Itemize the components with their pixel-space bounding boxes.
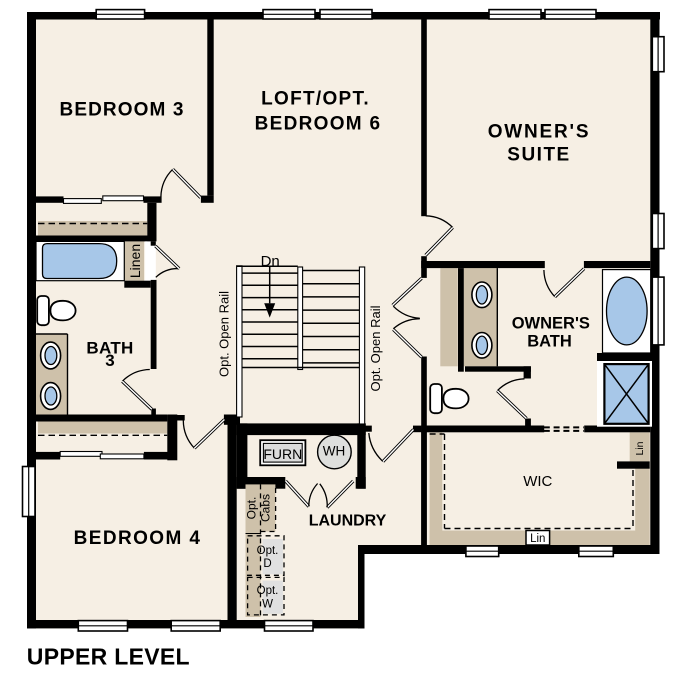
svg-text:SUITE: SUITE <box>507 145 570 166</box>
svg-text:OWNER'S: OWNER'S <box>488 122 591 143</box>
svg-text:Opt. Open Rail: Opt. Open Rail <box>217 291 232 377</box>
svg-text:OWNER'S: OWNER'S <box>512 314 590 332</box>
svg-text:W: W <box>262 598 273 610</box>
svg-text:Dn: Dn <box>261 253 280 270</box>
svg-text:WIC: WIC <box>523 473 552 490</box>
svg-text:Lin: Lin <box>634 441 646 455</box>
svg-text:Opt. Open Rail: Opt. Open Rail <box>368 305 383 391</box>
svg-text:UPPER LEVEL: UPPER LEVEL <box>27 644 190 670</box>
svg-text:BEDROOM 3: BEDROOM 3 <box>60 100 185 121</box>
svg-text:Opt.: Opt. <box>257 545 279 557</box>
svg-text:LOFT/OPT.: LOFT/OPT. <box>261 89 370 110</box>
svg-text:BATH: BATH <box>527 332 572 350</box>
svg-text:Lin: Lin <box>530 533 545 545</box>
svg-text:Opt.: Opt. <box>257 585 279 597</box>
svg-text:WH: WH <box>323 444 346 459</box>
svg-text:Opt.: Opt. <box>245 497 259 520</box>
svg-text:BEDROOM 6: BEDROOM 6 <box>255 114 382 135</box>
svg-text:LAUNDRY: LAUNDRY <box>309 513 387 530</box>
svg-text:FURN: FURN <box>263 446 302 462</box>
svg-text:Cabs: Cabs <box>259 494 273 522</box>
svg-text:Linen: Linen <box>127 244 143 278</box>
svg-text:BEDROOM 4: BEDROOM 4 <box>74 528 202 549</box>
svg-text:3: 3 <box>105 351 114 370</box>
svg-text:D: D <box>263 558 271 570</box>
